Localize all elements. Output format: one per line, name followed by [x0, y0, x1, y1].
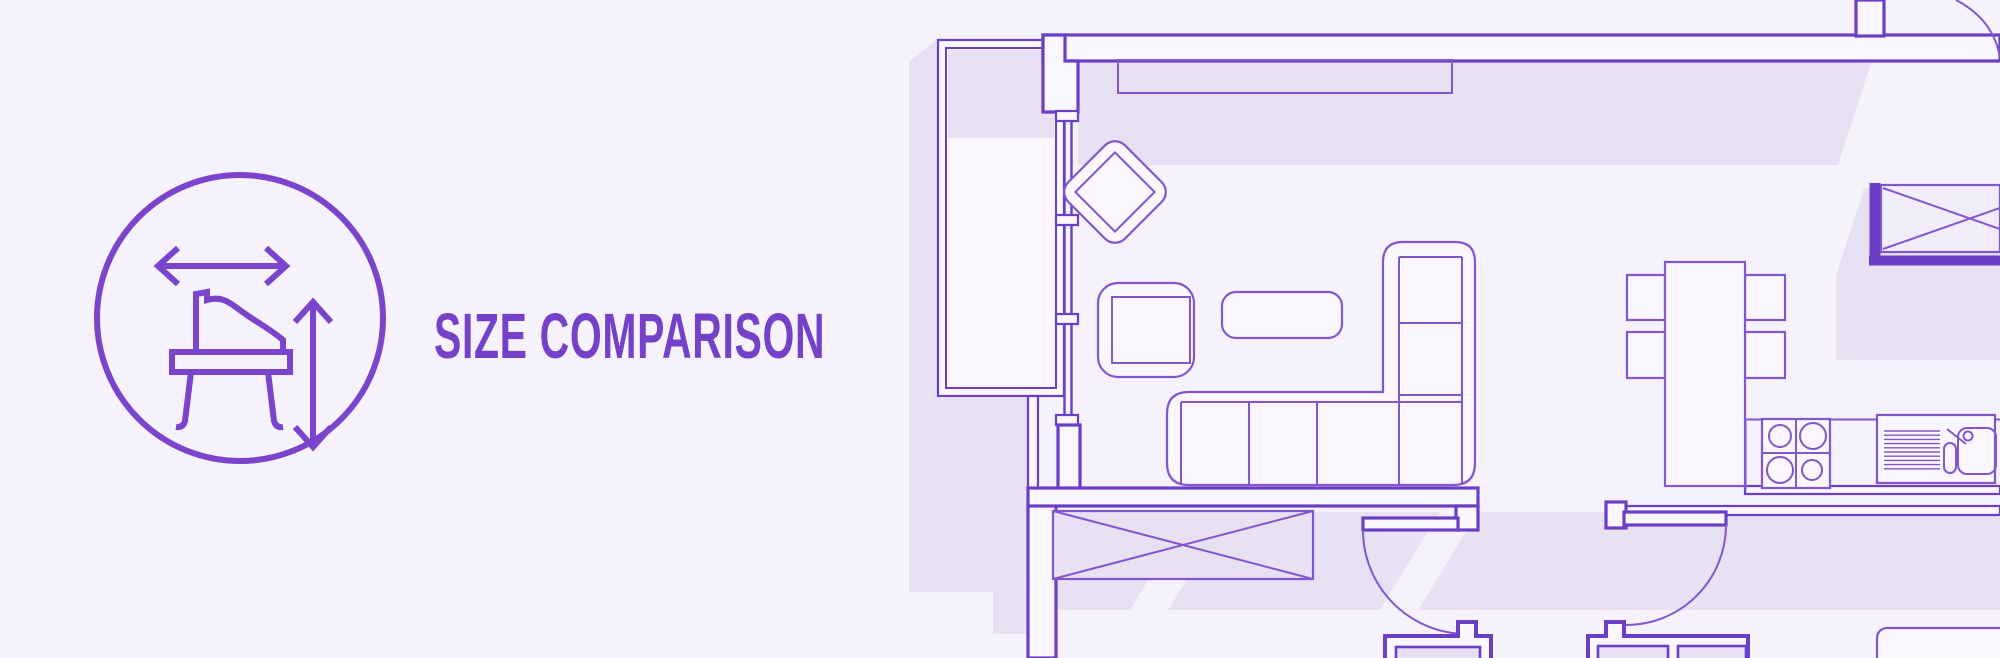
- width-arrow-icon: [158, 248, 286, 284]
- door-sill: [1385, 622, 1491, 658]
- grand-piano-side-icon: [172, 292, 290, 427]
- chair: [1745, 332, 1785, 378]
- coffee-table: [1222, 292, 1342, 338]
- bathroom-fixture: [1877, 628, 2000, 658]
- stove: [1762, 419, 1830, 488]
- wardrobe: [1053, 511, 1313, 579]
- door-sill: [1588, 622, 1748, 658]
- chair: [1627, 332, 1665, 378]
- window-glass: [1881, 185, 2000, 252]
- living-room-bottom-wall: [1028, 488, 1478, 506]
- banner: SIZE COMPARISON: [0, 0, 2000, 658]
- height-arrow-icon: [295, 302, 331, 447]
- top-wall-stub: [1856, 0, 1884, 36]
- kitchen-sink: [1877, 415, 1996, 483]
- armchair: [1098, 283, 1194, 377]
- balcony-shadow-band: [948, 50, 1054, 138]
- dining-table: [1665, 262, 1745, 486]
- size-badge: [97, 175, 383, 461]
- chair: [1745, 275, 1785, 320]
- banner-graphics: [0, 0, 2000, 658]
- floor-plan: [909, 0, 2000, 658]
- banner-title: SIZE COMPARISON: [434, 299, 825, 373]
- corner-sofa: [1167, 242, 1475, 485]
- corridor-left-wall: [1028, 505, 1056, 658]
- badge-circle: [97, 175, 383, 461]
- top-wall: [1043, 35, 2000, 61]
- chair: [1627, 275, 1665, 320]
- window-unit: [1869, 183, 2000, 262]
- shadow-top-wall: [1078, 60, 1872, 165]
